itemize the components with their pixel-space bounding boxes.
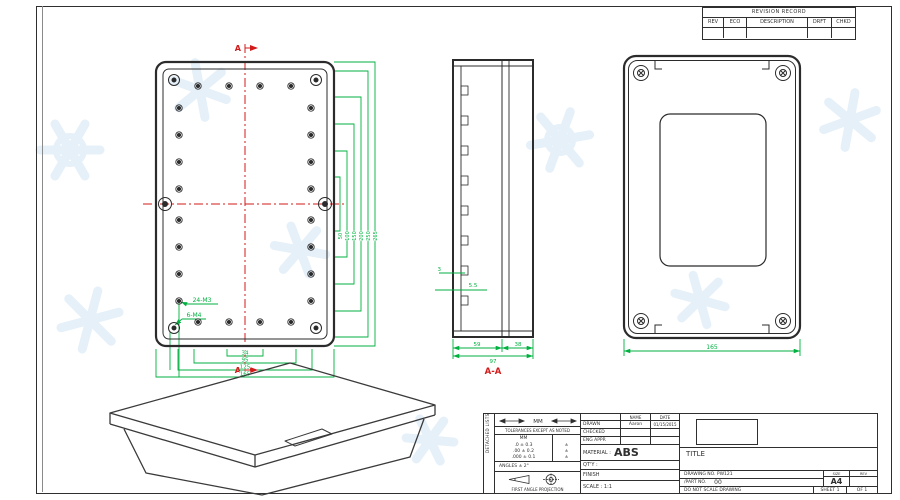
- blank-header: [581, 414, 621, 421]
- part-no-label: /PART NO.: [684, 480, 706, 485]
- rear-view: 165: [608, 36, 818, 361]
- edge-strip-label: DETACHED LISTS: [485, 414, 490, 453]
- units-arrows: MM: [496, 414, 580, 426]
- title-block-edge-strip: DETACHED LISTS: [484, 414, 495, 493]
- checked-date: [651, 429, 680, 437]
- name-header: NAME: [621, 414, 651, 421]
- qty-label: QT'Y :: [581, 461, 680, 470]
- revision-record-title: REVISION RECORD: [703, 8, 855, 18]
- dim-97: 97: [490, 359, 497, 365]
- eng-appr-label: ENG APPR: [581, 437, 621, 445]
- part-no-cell: /PART NO. 00: [680, 479, 824, 487]
- drawn-label: DRAWN: [581, 421, 621, 429]
- iso-outline: [110, 363, 435, 495]
- drawing-no: DRAWING NO. PW121: [680, 471, 824, 479]
- projection-label: FIRST ANGLE PROJECTION: [495, 486, 580, 492]
- tol-row-3: .000 ± 0.1: [495, 454, 552, 460]
- col-chkd: CHKD: [832, 18, 855, 27]
- eng-appr-date: [651, 437, 680, 445]
- rear-outline: [624, 56, 800, 338]
- section-view: 3 5.5 59 38 97 A-A: [425, 40, 555, 380]
- section-mark-a-top: A: [235, 44, 242, 53]
- sheet-border-inner: [42, 6, 43, 492]
- drawn-date: 01/15/2015: [651, 421, 680, 429]
- dim-38: 38: [515, 342, 522, 348]
- dim-rear-165: 165: [706, 344, 718, 351]
- dim-wall-3: 3: [438, 267, 442, 273]
- sheet-text: SHEET 1: [814, 487, 847, 493]
- finish-label: FINISH: [581, 470, 680, 481]
- tol-mark-3: ±: [553, 454, 580, 460]
- date-header: DATE: [651, 414, 680, 421]
- isometric-view: [80, 355, 460, 500]
- dim-r-250: 250: [366, 231, 372, 241]
- no-scale-note: DO NOT SCALE DRAWING: [680, 487, 814, 493]
- checked-label: CHECKED: [581, 429, 621, 437]
- rear-corner-screws: [634, 61, 791, 333]
- first-angle-symbol: [495, 473, 579, 486]
- title-block: DETACHED LISTS MM TOLERANCES EXCEPT AS N…: [483, 413, 878, 494]
- scale-label: SCALE : 1:1: [581, 481, 680, 493]
- dim-r-200: 200: [359, 231, 365, 241]
- angles-tolerance: ANGLES ± 2°: [495, 461, 581, 472]
- callout-24-m3: 24-M3: [193, 297, 212, 304]
- units-cell: MM: [495, 414, 581, 427]
- rev-value: [850, 477, 877, 487]
- revision-record-header: REV ECO DESCRIPTION DRFT CHKD: [703, 18, 855, 28]
- size-value: A4: [824, 477, 850, 487]
- callout-6-m4: 6-M4: [187, 312, 202, 319]
- dim-r-50: 50: [338, 233, 344, 239]
- material-label: MATERIAL :: [583, 450, 611, 456]
- units-label: MM: [533, 419, 543, 425]
- logo-area: [680, 414, 877, 447]
- tolerance-table: MM .0 ± 0.3 .00 ± 0.2 .000 ± 0.1: [495, 435, 553, 461]
- section-outline: [453, 60, 533, 337]
- dim-59: 59: [474, 342, 481, 348]
- tol-unit-header: MM: [495, 435, 552, 442]
- eng-appr-name: [621, 437, 651, 445]
- projection-cell: FIRST ANGLE PROJECTION: [495, 472, 581, 493]
- col-drft: DRFT: [808, 18, 832, 27]
- section-label-a-a: A-A: [485, 367, 502, 377]
- material-cell: MATERIAL : ABS: [581, 445, 680, 461]
- title-cell: TITLE: [680, 447, 877, 471]
- checked-name: [621, 429, 651, 437]
- dim-r-150: 150: [352, 231, 358, 241]
- logo-box: [696, 419, 758, 445]
- tolerance-marks: ± ± ±: [553, 435, 581, 461]
- front-centerlines: [143, 44, 347, 374]
- front-dim-lines: [156, 62, 375, 377]
- front-view: A A: [140, 40, 400, 390]
- dim-r-265: 265: [373, 231, 379, 241]
- col-eco: ECO: [724, 18, 747, 27]
- col-rev: REV: [703, 18, 724, 27]
- material-value: ABS: [614, 446, 639, 459]
- part-no-value: 00: [714, 479, 722, 486]
- drawn-name: Aaron: [621, 421, 651, 429]
- tolerance-note: TOLERANCES EXCEPT AS NOTED: [495, 427, 581, 435]
- dim-r-100: 100: [345, 231, 351, 241]
- of-text: OF 1: [847, 487, 877, 493]
- dim-boss-5-5: 5.5: [469, 283, 478, 289]
- col-description: DESCRIPTION: [747, 18, 808, 27]
